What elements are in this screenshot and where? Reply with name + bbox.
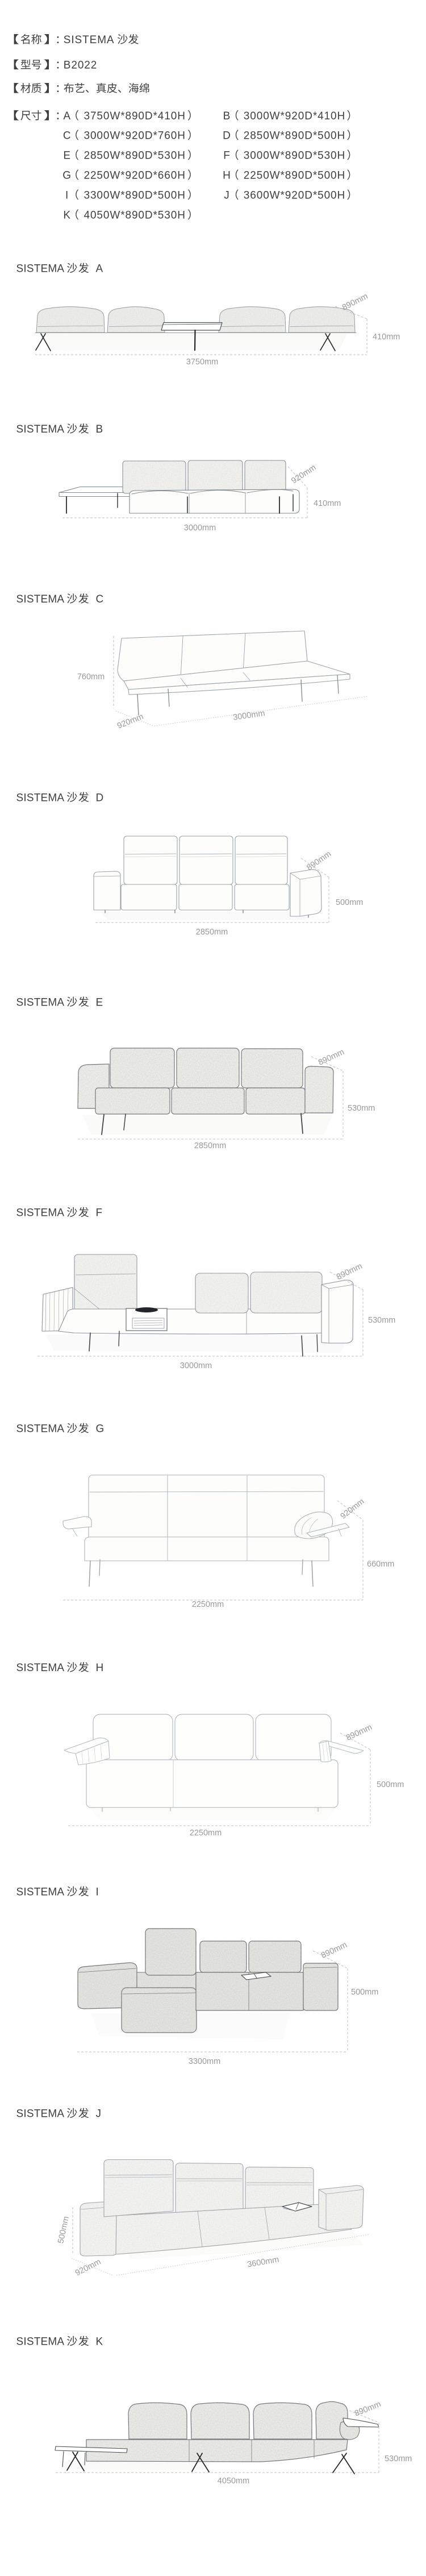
svg-text:760mm: 760mm [77, 672, 105, 682]
svg-text:C: C [63, 130, 71, 142]
svg-text:3600W*920D*500H: 3600W*920D*500H [244, 190, 345, 202]
svg-text:K: K [96, 2336, 103, 2348]
svg-text:530mm: 530mm [368, 1316, 395, 1325]
svg-text:SISTEMA: SISTEMA [16, 792, 65, 804]
svg-text:530mm: 530mm [348, 1104, 375, 1113]
svg-text:B2022: B2022 [64, 60, 97, 72]
svg-text:530mm: 530mm [385, 2454, 412, 2463]
svg-text:500mm: 500mm [351, 1988, 378, 1997]
svg-text:I: I [96, 1887, 99, 1898]
svg-text:B: B [223, 110, 231, 122]
svg-text:SISTEMA: SISTEMA [16, 1887, 65, 1898]
svg-text:E: E [63, 150, 70, 162]
svg-text:SISTEMA: SISTEMA [16, 1662, 65, 1674]
svg-text:SISTEMA: SISTEMA [16, 593, 65, 605]
svg-text:F: F [96, 1207, 103, 1219]
svg-text:2250mm: 2250mm [192, 1600, 224, 1609]
svg-text:I: I [65, 190, 68, 202]
svg-text:C: C [96, 593, 104, 605]
svg-text:500mm: 500mm [56, 2216, 71, 2245]
svg-text:890mm: 890mm [341, 292, 369, 312]
svg-text:2850mm: 2850mm [196, 928, 228, 937]
svg-text:4050W*890D*530H: 4050W*890D*530H [84, 210, 186, 222]
svg-text:920mm: 920mm [290, 463, 318, 486]
svg-text:890mm: 890mm [353, 2400, 382, 2419]
svg-text:3300mm: 3300mm [189, 2057, 220, 2066]
svg-text:2850mm: 2850mm [194, 1141, 226, 1150]
svg-text:920mm: 920mm [116, 712, 145, 731]
svg-text:500mm: 500mm [377, 1780, 404, 1789]
svg-text:SISTEMA: SISTEMA [16, 1207, 65, 1219]
svg-text:890mm: 890mm [345, 1723, 374, 1743]
svg-text:J: J [224, 190, 229, 202]
svg-text:2250W*890D*500H: 2250W*890D*500H [244, 170, 345, 182]
svg-text:SISTEMA: SISTEMA [16, 423, 65, 435]
svg-text:3750mm: 3750mm [186, 358, 218, 367]
svg-text:890mm: 890mm [305, 849, 333, 872]
svg-text:SISTEMA: SISTEMA [16, 996, 65, 1008]
svg-text:3000mm: 3000mm [180, 1361, 212, 1370]
svg-text:2850W*890D*500H: 2850W*890D*500H [244, 130, 345, 142]
svg-text:890mm: 890mm [335, 1262, 364, 1282]
svg-text:3000W*890D*530H: 3000W*890D*530H [244, 150, 345, 162]
svg-text:2250mm: 2250mm [190, 1829, 222, 1838]
svg-text:660mm: 660mm [367, 1560, 394, 1569]
svg-text:2850W*890D*530H: 2850W*890D*530H [84, 150, 186, 162]
svg-text:3600mm: 3600mm [247, 2255, 279, 2270]
svg-text:4050mm: 4050mm [218, 2477, 249, 2486]
svg-text:3000mm: 3000mm [232, 709, 265, 722]
svg-text:890mm: 890mm [320, 1941, 349, 1960]
svg-text:D: D [223, 130, 231, 142]
svg-text:A: A [63, 110, 70, 122]
svg-text:3000W*920D*410H: 3000W*920D*410H [244, 110, 345, 122]
svg-text:E: E [96, 996, 103, 1008]
svg-text:SISTEMA: SISTEMA [16, 1423, 65, 1435]
svg-text:D: D [96, 792, 104, 804]
svg-text:920mm: 920mm [74, 2257, 102, 2278]
svg-text:3300W*890D*500H: 3300W*890D*500H [84, 190, 186, 202]
svg-text:H: H [223, 170, 231, 182]
svg-text:G: G [62, 170, 71, 182]
svg-text:J: J [96, 2108, 102, 2120]
svg-text:2250W*920D*660H: 2250W*920D*660H [84, 170, 186, 182]
svg-text:SISTEMA: SISTEMA [64, 34, 115, 46]
svg-text:H: H [96, 1662, 104, 1674]
svg-text:410mm: 410mm [314, 499, 341, 508]
svg-text:3000W*920D*760H: 3000W*920D*760H [84, 130, 186, 142]
svg-text:890mm: 890mm [317, 1048, 346, 1067]
svg-text:3000mm: 3000mm [184, 523, 216, 533]
svg-text:F: F [223, 150, 230, 162]
svg-text:410mm: 410mm [373, 333, 400, 342]
svg-text:SISTEMA: SISTEMA [16, 2336, 65, 2348]
svg-text:SISTEMA: SISTEMA [16, 2108, 65, 2120]
svg-text:G: G [96, 1423, 105, 1435]
svg-text:SISTEMA: SISTEMA [16, 263, 65, 275]
svg-text:500mm: 500mm [336, 898, 363, 907]
svg-text:K: K [63, 210, 70, 222]
svg-text:B: B [96, 423, 103, 435]
svg-text:A: A [96, 263, 103, 275]
svg-text:920mm: 920mm [339, 1497, 366, 1521]
svg-text:3750W*890D*410H: 3750W*890D*410H [84, 110, 186, 122]
